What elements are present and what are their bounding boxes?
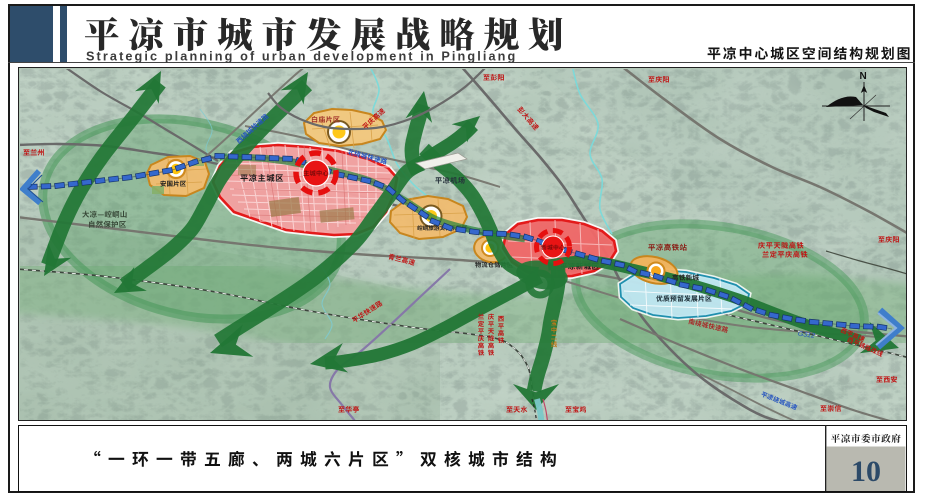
svg-text:Strategic planning of urban de: Strategic planning of urban development … xyxy=(86,49,517,63)
svg-text:N: N xyxy=(859,71,866,82)
svg-text:10: 10 xyxy=(851,455,881,488)
